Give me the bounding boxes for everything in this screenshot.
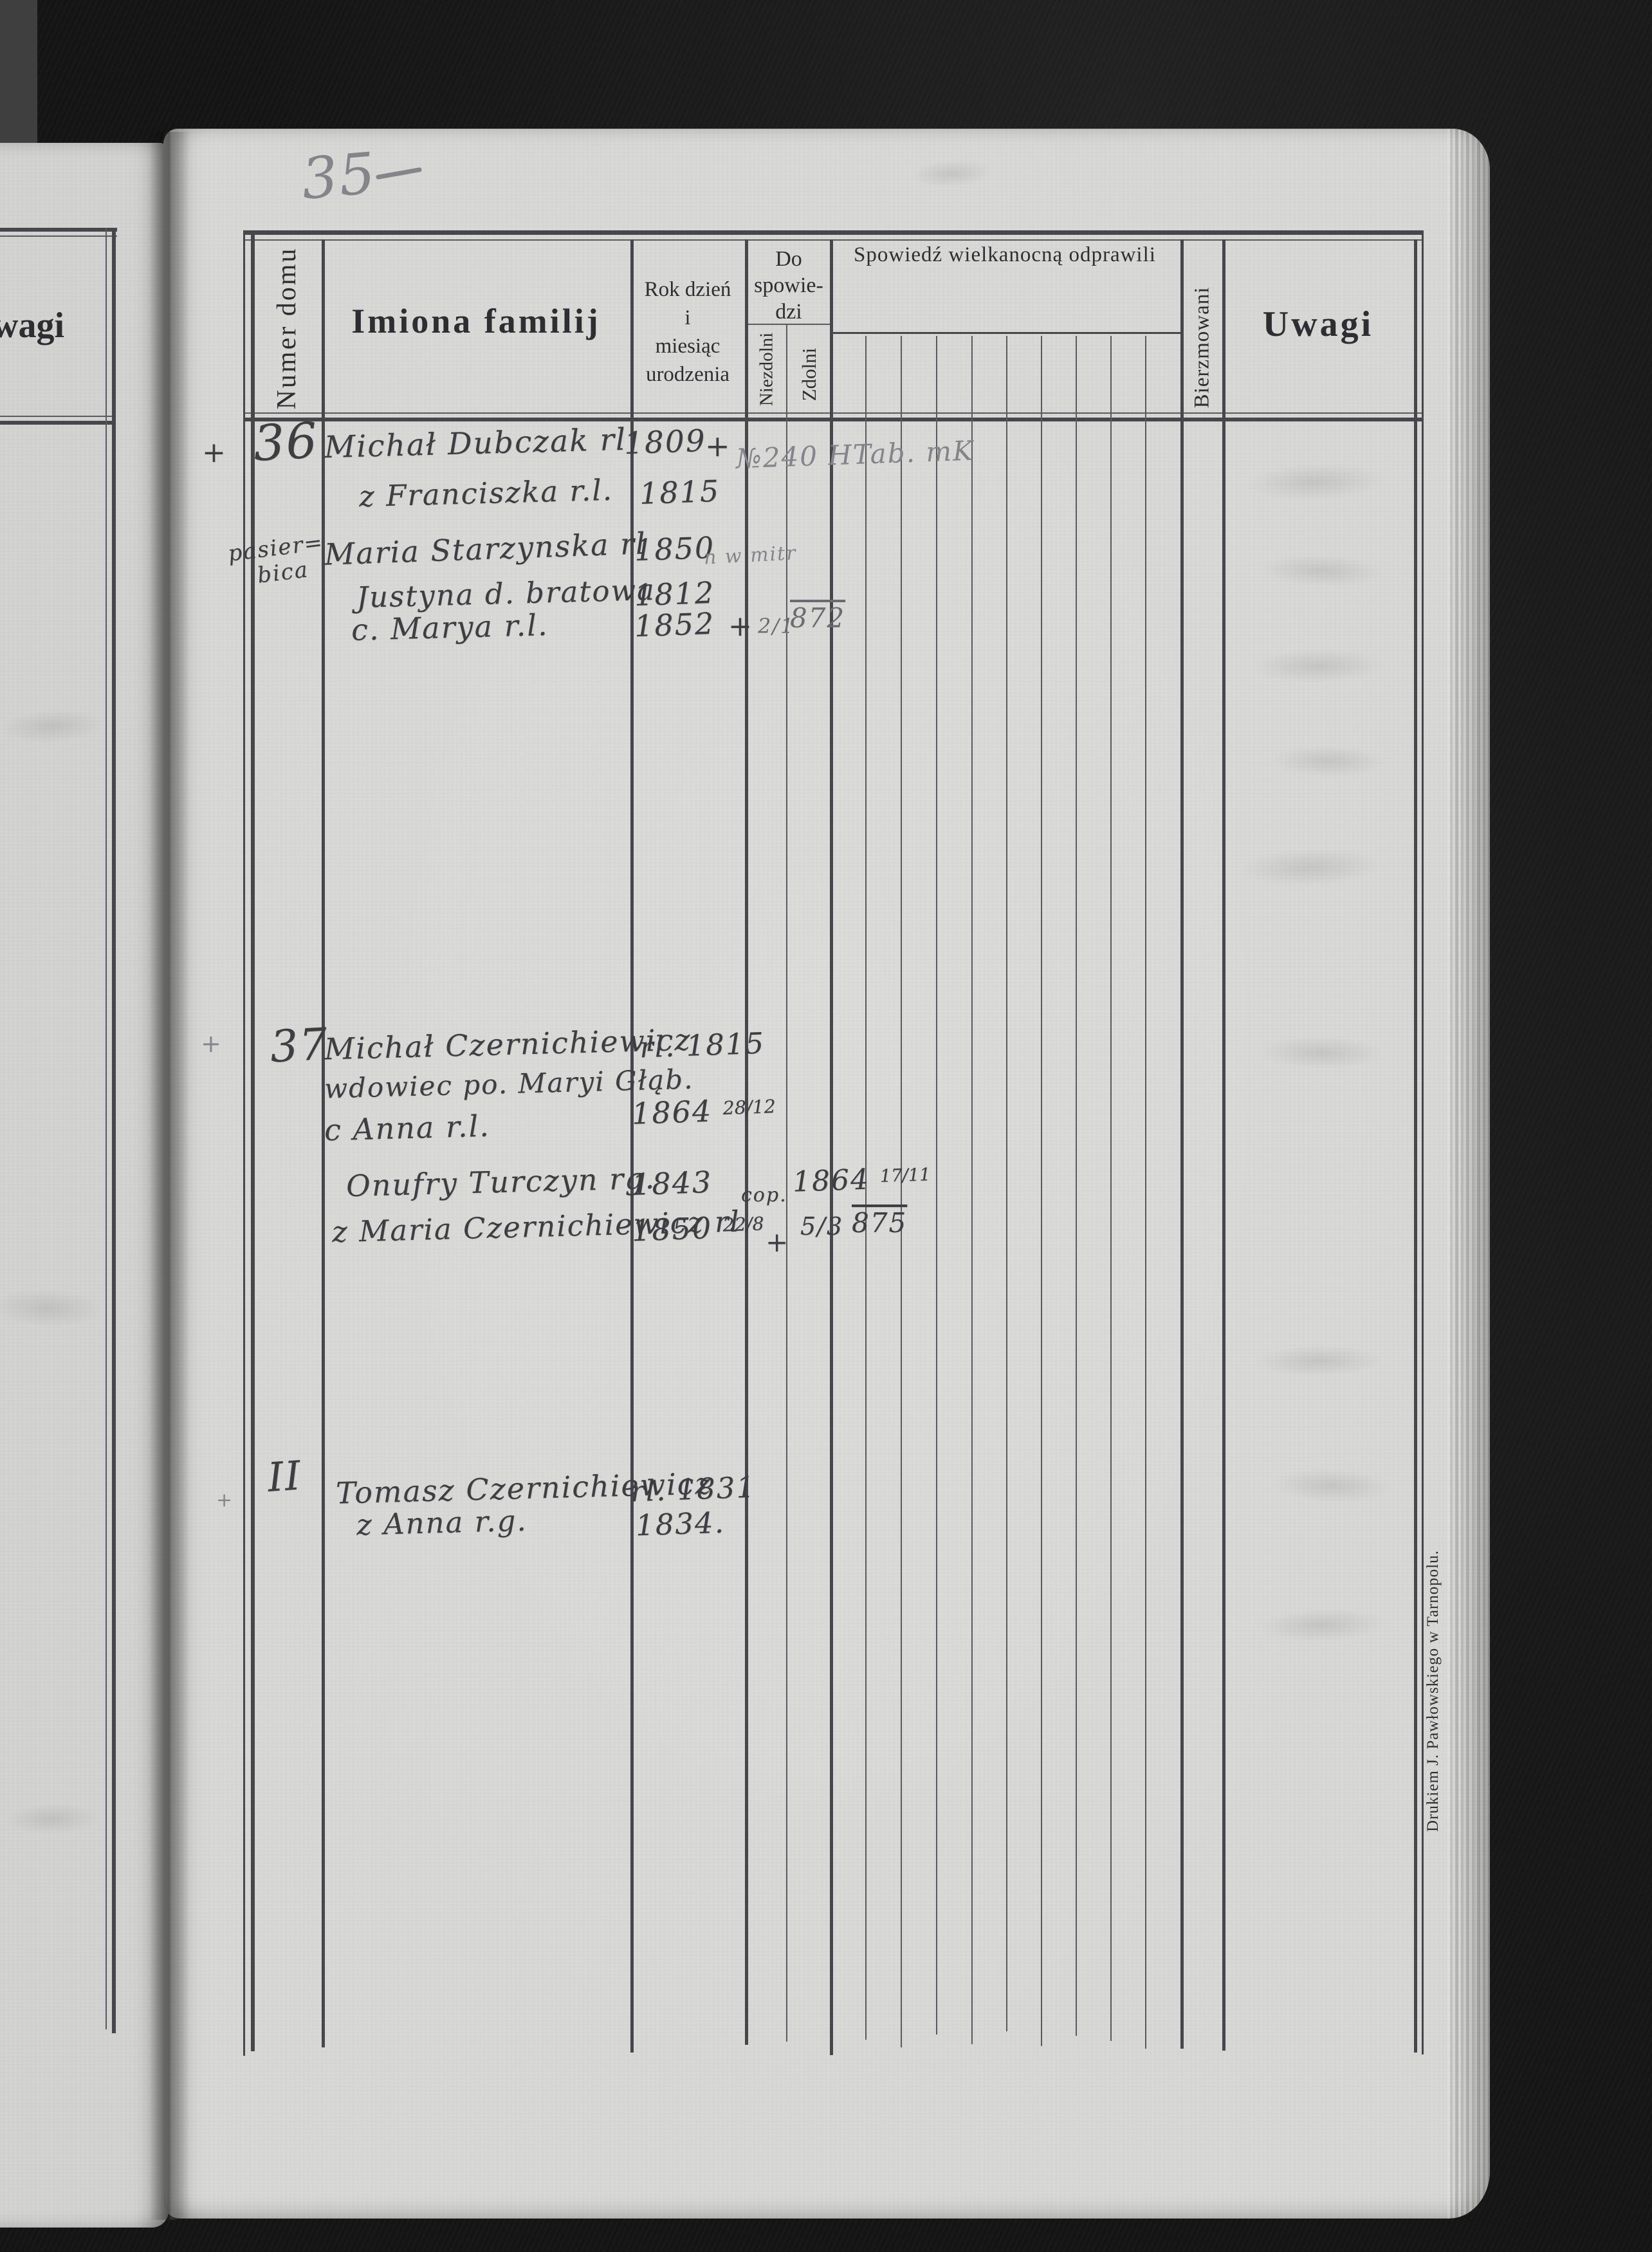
record-37-line3-birth: 1864 28/12 xyxy=(631,1091,776,1131)
spowiedz-subcol-rule xyxy=(936,336,937,2035)
pencil-smudge xyxy=(909,157,995,191)
record-37-line4-birth-year: 1843 xyxy=(631,1165,713,1202)
table-top-rule xyxy=(243,230,1424,235)
ink-showthrough-smudge xyxy=(1256,553,1386,589)
table-top-rule-inner xyxy=(243,239,1424,241)
prev-page-uwagi-label-partial: wagi xyxy=(0,305,64,346)
ink-showthrough-smudge xyxy=(1244,461,1386,503)
record-36-side-note-line2: bica xyxy=(256,557,310,588)
record-36-line1-birth-year: 1809 xyxy=(623,423,706,461)
record-36-line5-death-day: 2/1 xyxy=(758,614,795,638)
header-zdolni: Zdolni xyxy=(798,348,821,401)
record-37-line5-birth: 1850 22/8 xyxy=(631,1208,765,1248)
table-left-border-inner xyxy=(251,230,255,2051)
col-bierzmowani-left-rule xyxy=(1180,239,1184,2049)
header-rok-urodzenia: Rok dzień i miesiąc urodzenia xyxy=(645,275,731,389)
record-37-line3-birth-frac: 28/12 xyxy=(722,1096,776,1119)
printer-imprint: Drukiem J. Pawłowskiego w Tarnopolu. xyxy=(1424,1550,1442,1832)
ink-showthrough-smudge xyxy=(1256,1607,1386,1645)
scanned-register-photo: { "page_number": "35", "prev_page": { "u… xyxy=(0,0,1652,2252)
record-36-line2-birth-year: 1815 xyxy=(639,474,720,511)
record-36-line3-pencil-note: n w mitr xyxy=(703,542,797,569)
table-right-border-inner xyxy=(1414,239,1417,2053)
table-left-border-outer xyxy=(243,230,245,2056)
header-imiona-familij: Imiona familij xyxy=(351,301,601,341)
record-37-house-number: 37 xyxy=(269,1019,330,1073)
table-right-border-outer xyxy=(1422,230,1424,2054)
record-36-line1-pencil-note: №240 HTab. mK xyxy=(735,435,975,475)
record-37-margin-cross: + xyxy=(201,1029,223,1058)
spowiedz-subcol-rule xyxy=(1145,336,1146,2049)
register-page: 35 Numer domu Imiona familij Rok dzień i… xyxy=(163,129,1490,2219)
book-spine-shadow xyxy=(0,0,37,161)
spowiedz-subcol-rule xyxy=(1041,336,1042,2046)
ink-showthrough-smudge xyxy=(0,1286,106,1330)
record-II-line1-birth: rl. 1831 xyxy=(630,1470,757,1509)
col-bierzmowani-right-rule xyxy=(1222,239,1225,2051)
niezdolni-zdolni-divider xyxy=(786,325,787,2042)
ink-showthrough-smudge xyxy=(1249,647,1386,685)
spowiedz-subcol-rule xyxy=(1110,336,1112,2041)
record-37-line4-cop-date: 1864 17/11 xyxy=(792,1161,931,1198)
ink-showthrough-smudge xyxy=(0,706,107,747)
prev-box-bottom-rule xyxy=(0,421,113,425)
spowiedz-subcol-rule xyxy=(1006,336,1007,2031)
prev-box-top-rule-inner xyxy=(0,235,117,237)
ink-showthrough-smudge xyxy=(1270,744,1388,778)
ink-showthrough-smudge xyxy=(1236,845,1385,889)
record-36-line1-death-cross: + xyxy=(705,429,731,463)
record-36-house-number: 36 xyxy=(252,411,320,472)
spowiedz-subcol-rule xyxy=(971,336,973,2044)
record-II-margin-cross: + xyxy=(216,1489,234,1511)
record-37-line3-name: c Anna r.l. xyxy=(324,1109,490,1148)
prev-box-top-rule xyxy=(0,228,117,232)
record-37-line5-birth-frac: 22/8 xyxy=(722,1213,764,1235)
col-spowiedz-left-rule xyxy=(830,239,833,2055)
ink-showthrough-smudge xyxy=(1252,1343,1386,1378)
header-bierzmowani: Bierzmowani xyxy=(1191,287,1215,409)
spowiedz-subcol-rule xyxy=(1076,336,1077,2036)
record-36-line1-name: Michał Dubczak rl xyxy=(324,422,627,465)
record-36-line5-name: c. Marya r.l. xyxy=(351,607,549,647)
record-II-line2-name: z Anna r.g. xyxy=(356,1504,528,1542)
record-37-line5-death-day: 5/3 xyxy=(800,1212,843,1241)
header-niezdolni: Niezdolni xyxy=(757,333,778,406)
record-37-line4-name: Onufry Turczyn rg. xyxy=(345,1161,656,1204)
col-imiona-right-rule xyxy=(630,239,634,2053)
record-36-margin-cross: + xyxy=(202,436,227,469)
header-numer-domu: Numer domu xyxy=(271,247,302,410)
ink-showthrough-smudge xyxy=(1257,1035,1386,1070)
header-do-spowiedzi: Do spowie- dzi xyxy=(754,246,823,325)
page-deckle-edge xyxy=(1447,129,1490,2219)
record-36-line5-birth-year: 1852 xyxy=(634,606,715,643)
ink-showthrough-smudge xyxy=(1271,1466,1393,1506)
ink-showthrough-smudge xyxy=(3,1801,101,1836)
previous-page-edge: wagi xyxy=(0,143,169,2228)
record-37-line1-birth: rl. 1815 xyxy=(639,1026,766,1065)
record-37-line1-name: Michał Czernichiewicz xyxy=(324,1022,692,1067)
record-II-house-number: II xyxy=(266,1452,304,1501)
page-number-flourish xyxy=(376,167,422,180)
header-spowiedz-wielkanocna: Spowiedź wielkanocną odprawili xyxy=(854,243,1156,267)
record-37-line4-cop-label: cop. xyxy=(741,1184,787,1206)
record-36-line3-name: Maria Starzynska rl xyxy=(324,526,647,571)
page-number: 35 xyxy=(299,140,380,212)
record-37-line5-death-year: 875 xyxy=(852,1207,907,1239)
prev-box-bottom-rule-inner xyxy=(0,416,113,417)
record-36-line5-death-cross: + xyxy=(728,610,753,643)
record-II-line2-birth: 1834. xyxy=(635,1506,726,1543)
record-37-line5-death-cross: + xyxy=(766,1226,789,1258)
header-uwagi: Uwagi xyxy=(1263,304,1373,345)
spowiedz-underline xyxy=(830,332,1180,334)
record-36-line2-name: z Franciszka r.l. xyxy=(358,473,613,513)
record-37-line4-cop-frac: 17/11 xyxy=(879,1165,931,1186)
col-rok-right-rule xyxy=(745,239,748,2045)
prev-page-border xyxy=(112,228,116,2033)
prev-page-border-inner xyxy=(106,228,107,2029)
record-36-line5-death-year: 872 xyxy=(790,602,845,634)
